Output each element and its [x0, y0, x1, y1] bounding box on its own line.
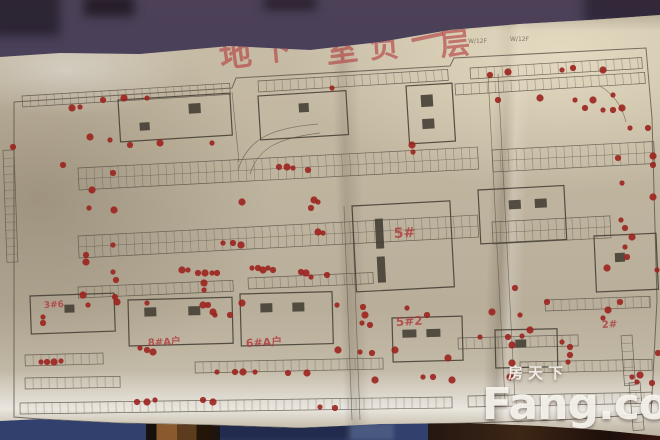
pencil-note: W/12F	[510, 36, 530, 43]
stall-divider	[386, 73, 387, 84]
stair-core	[422, 118, 435, 129]
red-dot-mark	[371, 376, 378, 383]
stall-divider	[518, 65, 519, 76]
red-dot-mark	[100, 97, 106, 103]
red-pen-note: 5#	[393, 225, 415, 242]
stall-divider	[479, 83, 480, 94]
red-dot-mark	[50, 358, 57, 365]
red-dot-mark	[544, 299, 550, 305]
red-dot-mark	[79, 291, 86, 298]
red-dot-mark	[232, 369, 238, 375]
red-dot-mark	[517, 312, 522, 317]
red-dot-mark	[68, 104, 75, 111]
stall-divider	[567, 77, 568, 88]
red-dot-mark	[227, 312, 233, 318]
red-dot-mark	[610, 107, 616, 113]
stall-divider	[526, 65, 527, 76]
red-dot-mark	[627, 125, 632, 130]
red-dot-mark	[645, 125, 651, 131]
stall-divider	[486, 67, 487, 78]
red-dot-mark	[276, 164, 282, 170]
stall-divider	[558, 63, 559, 74]
red-dot-mark	[127, 142, 133, 148]
stall-divider	[631, 73, 632, 84]
stall-divider	[402, 72, 403, 83]
red-dot-mark	[334, 302, 339, 307]
stall-divider	[534, 64, 535, 75]
stall-divider	[370, 74, 371, 85]
stall-divider	[614, 59, 615, 70]
red-dot-mark	[143, 398, 150, 405]
red-dot-mark	[144, 95, 149, 100]
stall-divider	[354, 75, 355, 86]
stall-divider	[426, 71, 427, 82]
stair-core	[377, 256, 386, 282]
red-dot-mark	[270, 267, 276, 273]
red-dot-mark	[424, 312, 430, 318]
red-dot-mark	[618, 217, 623, 222]
red-dot-mark	[10, 144, 16, 150]
marker-title-char: 室	[323, 29, 359, 71]
red-dot-mark	[317, 404, 322, 409]
stall-divider	[346, 76, 347, 87]
stair-core	[139, 122, 149, 131]
red-dot-mark	[567, 352, 573, 358]
red-dot-mark	[113, 277, 119, 283]
red-dot-mark	[85, 302, 90, 307]
red-dot-mark	[408, 141, 415, 148]
wall-shadow-streak	[264, 0, 316, 10]
red-dot-mark	[361, 311, 368, 318]
red-dot-mark	[290, 165, 295, 170]
parking-stall-strip	[545, 296, 650, 311]
red-dot-mark	[220, 240, 225, 245]
stair-core	[426, 329, 440, 337]
red-dot-mark	[200, 279, 207, 286]
red-dot-mark	[239, 368, 246, 375]
red-dot-mark	[495, 97, 501, 103]
stair-core	[421, 94, 434, 107]
red-dot-mark	[618, 104, 625, 111]
driveway-line	[488, 74, 505, 400]
building-outline	[30, 293, 115, 334]
red-dot-mark	[582, 105, 588, 111]
red-dot-mark	[302, 269, 309, 276]
red-dot-mark	[504, 68, 511, 75]
red-dot-mark	[195, 270, 201, 276]
stall-divider	[622, 59, 623, 70]
parking-stall-strip	[470, 57, 642, 78]
stair-core	[260, 303, 272, 312]
red-dot-mark	[152, 397, 157, 402]
stall-divider	[338, 76, 339, 87]
red-dot-mark	[237, 241, 244, 248]
red-dot-mark	[285, 370, 291, 376]
stall-divider	[394, 73, 395, 84]
red-dot-mark	[487, 72, 493, 78]
red-dot-mark	[505, 334, 511, 340]
stair-core	[509, 200, 521, 210]
red-dot-mark	[134, 399, 140, 405]
pencil-note: W/12F	[468, 38, 488, 45]
red-dot-mark	[600, 107, 605, 112]
red-dot-mark	[519, 333, 524, 338]
building-outline	[118, 93, 232, 142]
red-dot-mark	[508, 341, 515, 348]
red-dot-mark	[570, 65, 576, 71]
red-dot-mark	[650, 162, 656, 168]
driveway-line	[232, 92, 239, 162]
red-dot-mark	[209, 308, 216, 315]
red-dot-mark	[83, 252, 89, 258]
red-dot-mark	[536, 94, 543, 101]
red-dot-mark	[252, 369, 257, 374]
red-dot-mark	[144, 300, 149, 305]
red-dot-mark	[526, 326, 533, 333]
red-dot-mark	[185, 267, 190, 272]
red-dot-mark	[404, 305, 409, 310]
red-dot-mark	[201, 287, 206, 292]
red-dot-mark	[622, 225, 628, 231]
driveway-line	[498, 74, 515, 400]
red-dot-mark	[209, 270, 214, 275]
red-dot-mark	[617, 299, 623, 305]
red-dot-mark	[113, 298, 120, 305]
red-dot-mark	[238, 299, 245, 306]
blue-object	[346, 423, 394, 440]
wall-shadow-streak	[84, 0, 134, 16]
red-dot-mark	[488, 308, 495, 315]
red-dot-mark	[654, 267, 659, 272]
stall-divider	[494, 67, 495, 78]
stall-divider	[502, 66, 503, 77]
red-dot-mark	[391, 346, 398, 353]
building-outline	[594, 233, 658, 292]
red-dot-mark	[410, 149, 415, 154]
building-outline	[258, 91, 349, 140]
red-dot-mark	[649, 193, 656, 200]
stall-divider	[598, 60, 599, 71]
stall-divider	[519, 80, 520, 91]
red-dot-mark	[230, 240, 236, 246]
stair-core	[188, 306, 200, 315]
red-dot-mark	[249, 265, 254, 270]
red-dot-mark	[110, 242, 115, 247]
stair-core	[299, 103, 310, 113]
stair-core	[188, 103, 201, 114]
red-dot-mark	[655, 350, 660, 356]
red-dot-mark	[572, 97, 577, 102]
parking-stall-strip	[78, 280, 233, 298]
stair-core	[515, 339, 526, 347]
stall-divider	[630, 58, 631, 69]
stall-midline	[79, 226, 478, 247]
stall-divider	[583, 76, 584, 87]
red-dot-mark	[649, 152, 656, 159]
red-dot-mark	[44, 359, 50, 365]
stall-divider	[542, 64, 543, 75]
red-dot-mark	[359, 320, 364, 325]
stall-divider	[282, 80, 283, 91]
red-dot-mark	[308, 274, 313, 279]
stair-core	[64, 304, 74, 312]
stall-divider	[322, 77, 323, 88]
stall-divider	[503, 81, 504, 92]
stall-divider	[527, 80, 528, 91]
red-pen-note: 2#	[602, 319, 618, 331]
red-dot-mark	[214, 270, 220, 276]
parking-stall-strip	[20, 397, 452, 414]
building-outline	[352, 201, 454, 292]
red-dot-mark	[420, 374, 425, 379]
red-dot-mark	[624, 254, 630, 260]
red-dot-mark	[448, 376, 455, 383]
stall-midline	[493, 227, 611, 233]
stall-divider	[638, 58, 639, 69]
red-dot-mark	[40, 320, 46, 326]
red-dot-mark	[201, 269, 208, 276]
red-pen-note: 3#6	[44, 300, 65, 311]
red-dot-mark	[610, 92, 615, 97]
stall-divider	[511, 81, 512, 92]
marker-title-char: 下	[260, 32, 293, 69]
stall-divider	[607, 75, 608, 86]
stall-divider	[550, 63, 551, 74]
red-dot-mark	[334, 346, 341, 353]
stair-core	[615, 253, 625, 262]
red-dot-mark	[209, 140, 214, 145]
marker-title-char: 层	[438, 26, 471, 64]
stall-divider	[551, 78, 552, 89]
stall-divider	[599, 75, 600, 86]
fang-com-watermark: 房天下 Fang.com	[482, 366, 660, 427]
stall-divider	[266, 81, 267, 92]
photo-of-floor-plan: 5#5#26#A户8#A户3#62#W/12FW/12F地下室负一层 房天下 F…	[0, 0, 660, 440]
parking-stall-strip	[455, 72, 645, 95]
red-dot-mark	[314, 228, 321, 235]
red-dot-mark	[58, 358, 63, 363]
red-dot-mark	[324, 272, 330, 278]
red-dot-mark	[604, 306, 611, 313]
red-dot-mark	[303, 369, 310, 376]
red-dot-mark	[178, 266, 185, 273]
stair-core	[292, 302, 304, 311]
red-dot-mark	[209, 398, 216, 405]
stall-divider	[639, 73, 640, 84]
stall-divider	[623, 74, 624, 85]
stall-divider	[566, 62, 567, 73]
stall-divider	[591, 76, 592, 87]
red-dot-mark	[619, 180, 624, 185]
red-dot-mark	[369, 350, 375, 356]
parking-stall-strip	[25, 376, 120, 389]
red-dot-mark	[628, 233, 635, 240]
red-dot-mark	[110, 206, 117, 213]
stair-core	[535, 198, 547, 208]
red-dot-mark	[82, 258, 89, 265]
stall-divider	[622, 343, 633, 344]
red-dot-mark	[110, 170, 116, 176]
stall-divider	[434, 70, 435, 81]
parking-stall-strip	[25, 353, 103, 366]
watermark-logo-text: Fang.com	[482, 383, 660, 427]
stall-divider	[442, 70, 443, 81]
red-dot-mark	[86, 133, 93, 140]
stall-divider	[478, 68, 479, 79]
stall-divider	[410, 72, 411, 83]
stall-divider	[298, 79, 299, 90]
stall-divider	[463, 84, 464, 95]
red-dot-mark	[200, 397, 206, 403]
stall-divider	[378, 74, 379, 85]
red-dot-mark	[238, 198, 245, 205]
red-dot-mark	[430, 374, 436, 380]
red-dot-mark	[214, 369, 219, 374]
stall-divider	[495, 82, 496, 93]
red-dot-mark	[589, 96, 596, 103]
marker-title-char: 地	[217, 34, 254, 76]
red-dot-mark	[444, 354, 451, 361]
red-dot-mark	[477, 334, 482, 339]
red-dot-mark	[567, 344, 573, 350]
building-outline	[406, 83, 455, 144]
red-dot-mark	[315, 199, 320, 204]
red-dot-mark	[559, 339, 564, 344]
red-dot-mark	[367, 322, 373, 328]
stair-core	[144, 307, 156, 316]
stall-divider	[306, 78, 307, 89]
stall-midline	[493, 153, 655, 161]
stall-divider	[622, 351, 633, 352]
red-dot-mark	[120, 94, 127, 101]
stall-divider	[314, 78, 315, 89]
red-dot-mark	[86, 205, 91, 210]
red-dot-mark	[137, 345, 142, 350]
driveway-line	[344, 206, 352, 420]
stall-divider	[487, 82, 488, 93]
red-dot-mark	[156, 139, 163, 146]
red-dot-mark	[205, 302, 211, 308]
red-pen-note: 6#A户	[245, 334, 282, 350]
wall-corner-shadow	[0, 0, 60, 36]
red-dot-mark	[320, 230, 325, 235]
stall-divider	[290, 79, 291, 90]
red-pen-note: 8#A户	[147, 334, 181, 349]
red-dot-mark	[615, 155, 621, 161]
stair-core	[402, 329, 416, 337]
stall-divider	[471, 83, 472, 94]
marker-title-char: 负	[368, 29, 400, 66]
stall-divider	[543, 79, 544, 90]
red-dot-mark	[149, 348, 156, 355]
red-dot-mark	[360, 304, 366, 310]
red-dot-mark	[308, 205, 314, 211]
red-dot-mark	[603, 264, 610, 271]
stair-core	[375, 218, 385, 248]
red-dot-mark	[40, 314, 45, 319]
red-dot-mark	[559, 67, 564, 72]
red-dot-mark	[329, 85, 334, 90]
red-dot-mark	[265, 265, 270, 270]
red-dot-mark	[107, 137, 112, 142]
red-dot-mark	[357, 349, 362, 354]
red-dot-mark	[332, 405, 338, 411]
parking-stall-strip	[78, 215, 479, 258]
stall-divider	[615, 74, 616, 85]
stall-divider	[559, 78, 560, 89]
red-dot-mark	[599, 66, 606, 73]
red-dot-mark	[110, 269, 115, 274]
parking-stall-strip	[3, 150, 18, 262]
red-dot-mark	[77, 104, 82, 109]
stall-divider	[590, 61, 591, 72]
red-dot-mark	[512, 285, 518, 291]
red-dot-mark	[88, 186, 95, 193]
stall-divider	[575, 77, 576, 88]
stall-divider	[535, 79, 536, 90]
red-dot-mark	[38, 359, 43, 364]
red-dot-mark	[283, 163, 290, 170]
building-outline	[478, 185, 567, 243]
parking-stall-strip	[258, 69, 448, 92]
red-dot-mark	[60, 162, 66, 168]
driveway-line	[600, 86, 626, 122]
stall-divider	[274, 80, 275, 91]
red-pen-note: 5#2	[395, 314, 422, 329]
stall-divider	[362, 75, 363, 86]
red-dot-mark	[305, 167, 311, 173]
parking-stall-strip	[492, 142, 655, 172]
stall-divider	[582, 61, 583, 72]
stall-divider	[418, 71, 419, 82]
red-dot-mark	[622, 244, 627, 249]
